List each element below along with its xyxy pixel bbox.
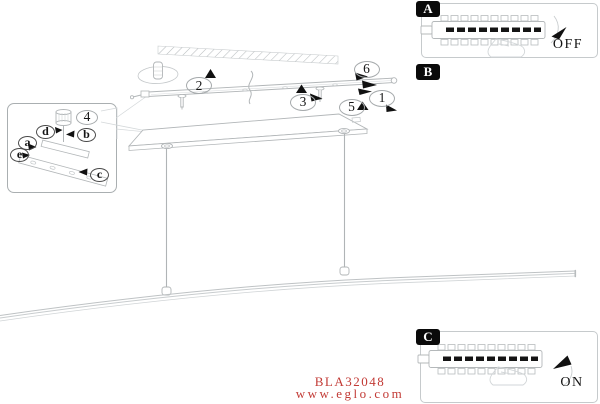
state-off-text: OFF [546,37,590,53]
panel-label-c: C [416,329,440,345]
ceiling-hatch [158,46,338,64]
part-callout-6: 6 [354,61,380,78]
panel-label-a: A [416,1,440,17]
arrow-inset-d [55,127,63,134]
arrow-part2 [205,69,216,78]
part-callout-1: 1 [369,90,395,107]
instruction-sheet: A B C OFF ON 1 2 3 4 5 6 a b c d e BLA32… [0,0,600,404]
cursor-arrow-on [553,356,572,370]
ceiling-canopy [129,114,367,151]
inset-callout-e: e [10,148,29,162]
wall-anchor-detail [138,62,179,85]
diagram-artwork [0,0,600,404]
state-on-text: ON [552,375,592,391]
inset-callout-c: c [90,168,109,182]
panel-label-b: B [416,64,440,80]
inset-leader-lines [116,96,147,132]
curved-light-bar [0,271,575,322]
suspension-cables [162,134,349,296]
part-callout-2: 2 [186,77,212,94]
arrow-inset-b [66,131,75,138]
inset-callout-d: d [36,125,55,139]
part-callout-3: 3 [290,94,316,111]
part-callout-5: 5 [339,99,365,116]
inset-callout-b: b [77,128,96,142]
part-callout-4: 4 [76,110,98,125]
website-url: www.eglo.com [294,386,406,402]
